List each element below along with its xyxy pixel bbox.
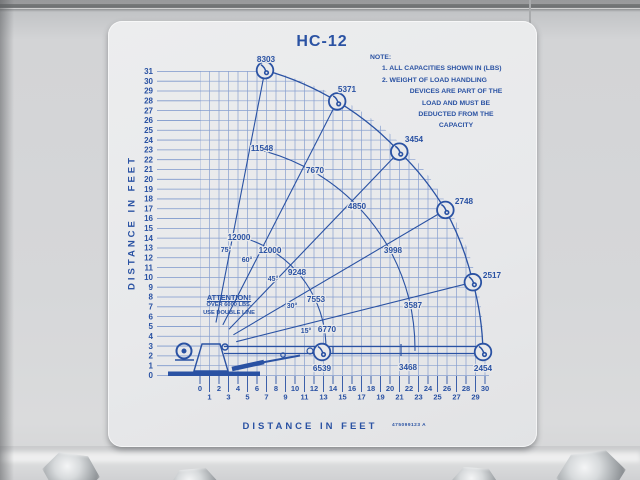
page-title: HC-12 [260,33,384,51]
svg-text:9: 9 [283,393,287,402]
svg-text:20: 20 [144,175,153,184]
svg-text:24: 24 [144,136,153,145]
svg-text:21: 21 [395,393,403,402]
attention-heading: ATTENTION! [196,293,262,302]
note-block: NOTE: 1. ALL CAPACITIES SHOWN IN (LBS) 2… [370,52,528,132]
svg-text:21: 21 [144,165,153,174]
sheave-marker [391,143,408,160]
svg-text:3998: 3998 [384,246,403,255]
svg-text:27: 27 [144,106,153,115]
svg-text:30°: 30° [287,302,298,310]
sheave-marker [475,344,492,361]
svg-text:27: 27 [452,393,460,402]
svg-text:29: 29 [144,87,153,96]
svg-text:8: 8 [274,384,278,393]
note-line: 2. WEIGHT OF LOAD HANDLING [370,75,528,86]
y-axis-title: DISTANCE IN FEET [127,123,140,323]
svg-text:13: 13 [144,244,153,253]
svg-text:2454: 2454 [474,364,493,373]
svg-text:12: 12 [144,253,153,262]
svg-text:20: 20 [386,384,394,393]
svg-text:25: 25 [144,126,153,135]
svg-text:2748: 2748 [455,197,474,206]
note-line: LOAD AND MUST BE [370,98,528,109]
note-line: 1. ALL CAPACITIES SHOWN IN (LBS) [370,63,528,74]
svg-text:5: 5 [245,393,249,402]
svg-text:1: 1 [149,361,154,370]
sheave-marker [437,202,454,219]
svg-text:45°: 45° [268,275,279,283]
svg-text:11548: 11548 [251,144,274,153]
svg-text:11: 11 [301,393,309,402]
svg-text:4: 4 [236,384,241,393]
svg-text:0: 0 [198,384,202,393]
svg-text:18: 18 [367,384,375,393]
boom-horizontal [224,344,489,357]
svg-text:1: 1 [207,393,211,402]
svg-text:6: 6 [255,384,259,393]
note-line: DEVICES ARE PART OF THE [370,86,528,97]
svg-text:13: 13 [319,393,327,402]
svg-text:15: 15 [144,224,153,233]
note-heading: NOTE: [370,52,528,63]
svg-text:12000: 12000 [259,246,282,255]
svg-text:10: 10 [144,273,153,282]
svg-text:7670: 7670 [306,166,325,175]
svg-text:2517: 2517 [483,271,502,280]
svg-text:7: 7 [264,393,268,402]
svg-text:75°: 75° [221,246,232,254]
svg-text:19: 19 [144,185,153,194]
svg-text:3468: 3468 [399,363,418,372]
svg-text:14: 14 [144,234,153,243]
svg-text:4850: 4850 [348,202,367,211]
svg-text:3: 3 [149,342,154,351]
svg-text:24: 24 [424,384,433,393]
sheave-marker [257,62,274,79]
svg-text:22: 22 [144,155,153,164]
svg-text:17: 17 [357,393,365,402]
svg-text:11: 11 [145,263,154,272]
svg-text:5: 5 [149,322,154,331]
svg-text:15: 15 [338,393,346,402]
svg-text:2: 2 [149,352,154,361]
svg-text:7: 7 [149,303,154,312]
svg-text:0: 0 [149,371,154,380]
svg-text:22: 22 [405,384,413,393]
svg-text:6: 6 [149,312,154,321]
x-axis-title: DISTANCE IN FEET [220,421,400,432]
svg-text:16: 16 [348,384,356,393]
svg-text:9: 9 [149,283,154,292]
svg-text:28: 28 [144,97,153,106]
svg-text:3587: 3587 [404,301,423,310]
svg-text:23: 23 [414,393,422,402]
svg-text:8303: 8303 [257,55,276,64]
attention-line: USE DOUBLE LINE [196,310,262,318]
load-chart-svg: 0123456789101112131415161718192021222324… [0,0,640,480]
svg-text:29: 29 [471,393,479,402]
svg-text:9248: 9248 [288,268,307,277]
svg-text:15°: 15° [301,327,312,335]
svg-text:19: 19 [376,393,384,402]
svg-text:4: 4 [149,332,154,341]
svg-text:16: 16 [144,214,153,223]
note-line: DEDUCTED FROM THE [370,109,528,120]
part-number: 475099123 A [392,423,472,428]
svg-text:28: 28 [462,384,470,393]
sheave-marker [465,274,482,291]
svg-text:8: 8 [149,293,154,302]
svg-text:2: 2 [217,384,221,393]
svg-text:26: 26 [443,384,451,393]
svg-text:30: 30 [144,77,153,86]
photo-of-crane-capacity-placard: 0123456789101112131415161718192021222324… [0,0,640,480]
svg-text:30: 30 [481,384,489,393]
sheave-marker [329,93,346,110]
attention-block: ATTENTION! OVER 6000 LBS. USE DOUBLE LIN… [196,293,262,317]
svg-text:17: 17 [144,204,153,213]
svg-text:23: 23 [144,146,153,155]
svg-text:26: 26 [144,116,153,125]
svg-text:6770: 6770 [318,325,337,334]
svg-text:3454: 3454 [405,135,424,144]
x-axis-labels: 0123456789101112131415161718192021222324… [198,376,489,402]
svg-text:7553: 7553 [307,295,326,304]
crane-illustration [168,344,313,377]
svg-text:5371: 5371 [338,85,357,94]
svg-text:31: 31 [144,67,153,76]
svg-text:60°: 60° [242,256,253,264]
svg-text:12: 12 [310,384,318,393]
svg-text:3: 3 [226,393,230,402]
svg-text:12000: 12000 [228,233,251,242]
svg-text:18: 18 [144,195,153,204]
svg-text:10: 10 [291,384,299,393]
svg-text:6539: 6539 [313,364,332,373]
svg-text:25: 25 [433,393,441,402]
sheave-marker [314,344,331,361]
svg-text:14: 14 [329,384,338,393]
attention-line: OVER 6000 LBS. [196,302,262,310]
note-line: CAPACITY [370,120,528,131]
y-axis-labels: 0123456789101112131415161718192021222324… [144,67,200,380]
